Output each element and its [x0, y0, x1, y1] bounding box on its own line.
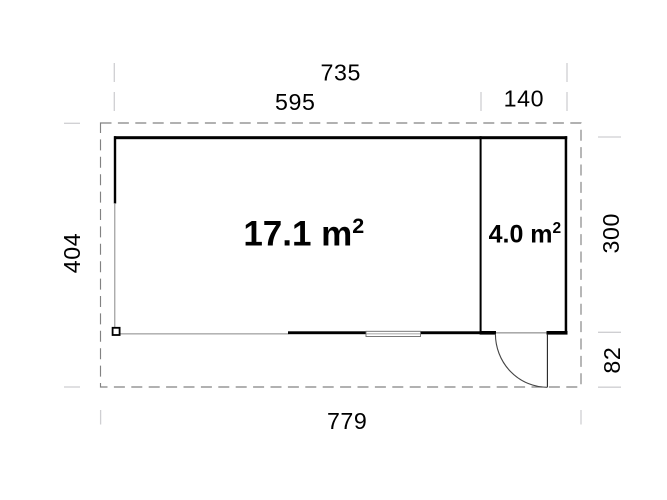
svg-text:82: 82	[599, 347, 625, 374]
svg-text:300: 300	[598, 213, 624, 254]
svg-text:779: 779	[327, 408, 368, 434]
svg-text:4.0 m2: 4.0 m2	[489, 220, 562, 249]
svg-text:404: 404	[59, 233, 85, 274]
svg-text:140: 140	[504, 86, 545, 112]
svg-text:595: 595	[275, 89, 316, 115]
svg-text:17.1 m2: 17.1 m2	[243, 214, 364, 254]
svg-text:735: 735	[321, 60, 362, 86]
